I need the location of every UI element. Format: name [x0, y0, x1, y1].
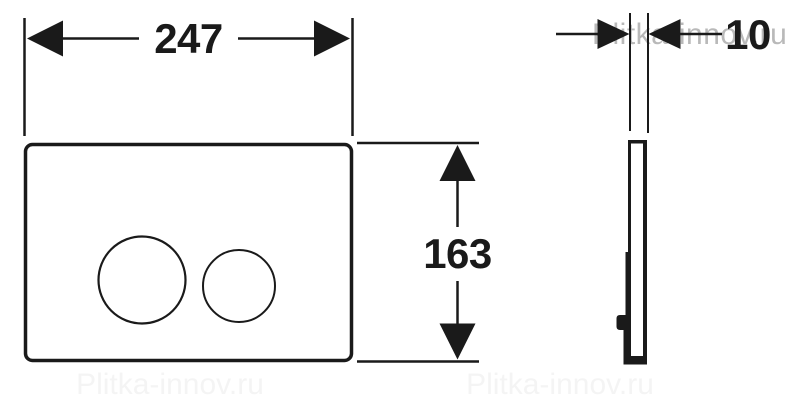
- arrowhead-up-icon: [440, 145, 476, 181]
- arrowhead-down-icon: [440, 324, 476, 360]
- plate-outline: [26, 145, 352, 361]
- width-dimension: 247: [25, 15, 353, 136]
- technical-drawing-canvas: Plitka-innov.ru Plitka-innov.ru Plitka-i…: [0, 0, 800, 401]
- arrowhead-right-icon: [314, 21, 350, 57]
- height-dimension: 163: [357, 143, 492, 362]
- arrowhead-left-icon: [27, 21, 63, 57]
- watermark-bottom-left: Plitka-innov.ru: [76, 368, 264, 401]
- thickness-dimension-value: 10: [725, 11, 771, 58]
- side-view: [617, 140, 648, 365]
- small-flush-button-circle: [203, 250, 275, 322]
- front-view: [26, 145, 352, 361]
- thickness-dimension: 10: [556, 11, 771, 133]
- height-dimension-value: 163: [423, 230, 492, 277]
- flush-plate-dimension-drawing: Plitka-innov.ru Plitka-innov.ru Plitka-i…: [0, 0, 800, 401]
- large-flush-button-circle: [99, 237, 186, 324]
- width-dimension-value: 247: [154, 15, 223, 62]
- side-profile-inner-face: [631, 144, 643, 357]
- watermark-bottom-right: Plitka-innov.ru: [466, 368, 654, 401]
